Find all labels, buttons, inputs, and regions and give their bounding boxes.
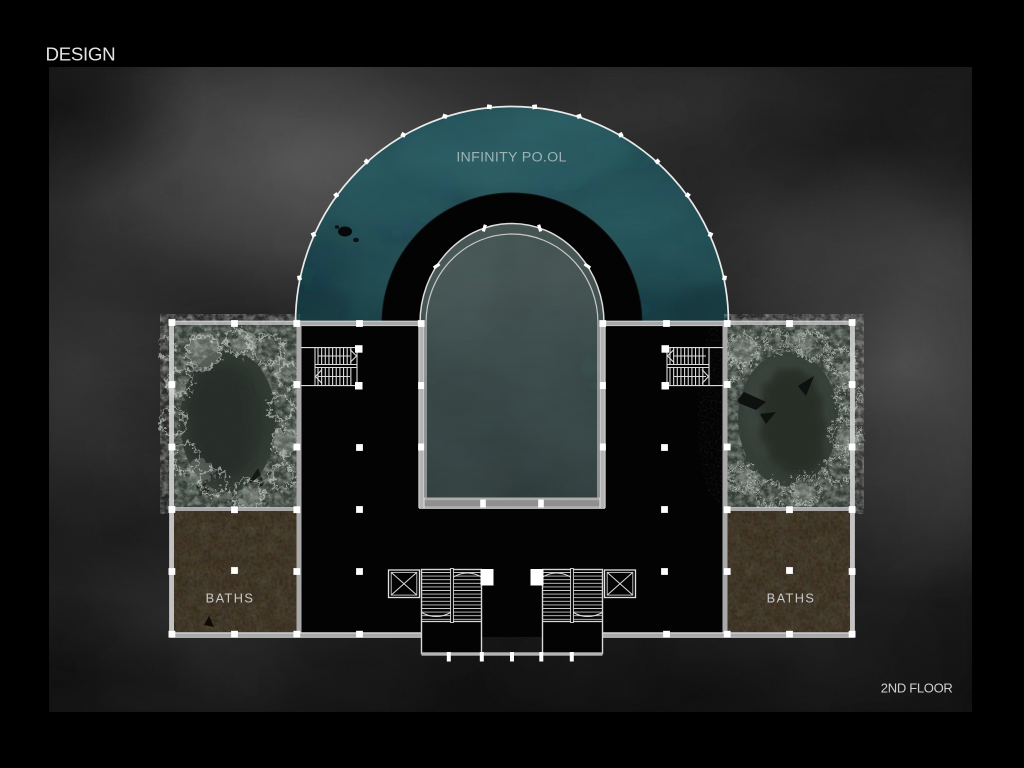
svg-text:INFINITY PO.OL: INFINITY PO.OL [456, 150, 566, 166]
svg-text:DESIGN: DESIGN [46, 44, 116, 65]
svg-text:2ND FLOOR: 2ND FLOOR [881, 681, 953, 696]
svg-text:BATHS: BATHS [767, 591, 816, 606]
svg-text:BATHS: BATHS [206, 591, 255, 606]
